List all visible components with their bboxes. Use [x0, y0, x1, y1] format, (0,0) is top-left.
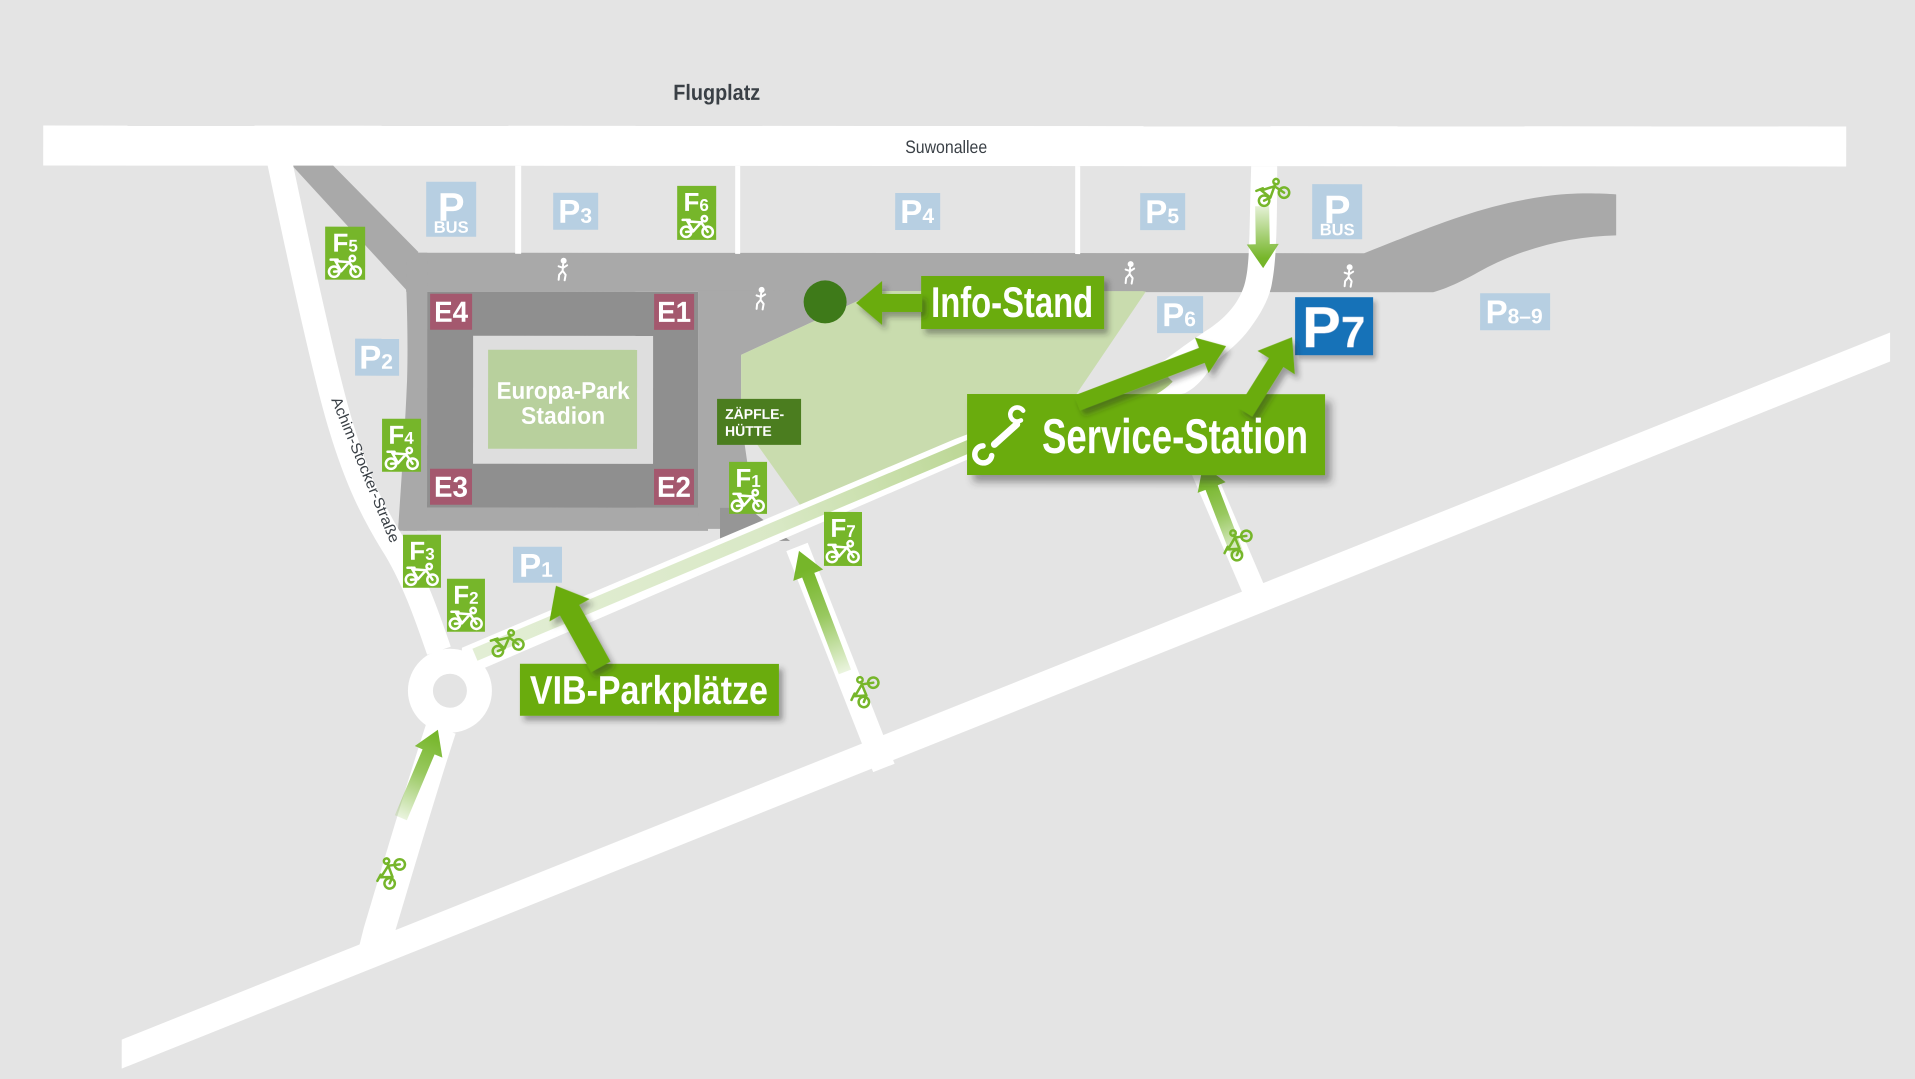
svg-text:Europa-Park: Europa-Park — [497, 378, 631, 405]
svg-text:Service-Station: Service-Station — [1042, 410, 1308, 464]
svg-text:E1: E1 — [657, 297, 691, 329]
svg-text:E4: E4 — [434, 297, 468, 329]
svg-text:E2: E2 — [657, 472, 691, 504]
svg-text:Info-Stand: Info-Stand — [931, 279, 1093, 327]
svg-text:Flugplatz: Flugplatz — [673, 80, 760, 105]
svg-text:E3: E3 — [434, 472, 468, 504]
svg-text:BUS: BUS — [1320, 221, 1355, 239]
svg-text:VIB-Parkplätze: VIB-Parkplätze — [530, 669, 768, 713]
svg-text:BUS: BUS — [434, 219, 469, 237]
svg-text:ZÄPFLE-: ZÄPFLE- — [725, 406, 784, 422]
svg-text:HÜTTE: HÜTTE — [725, 423, 772, 439]
svg-text:Suwonallee: Suwonallee — [905, 137, 987, 157]
svg-text:Stadion: Stadion — [521, 403, 605, 430]
